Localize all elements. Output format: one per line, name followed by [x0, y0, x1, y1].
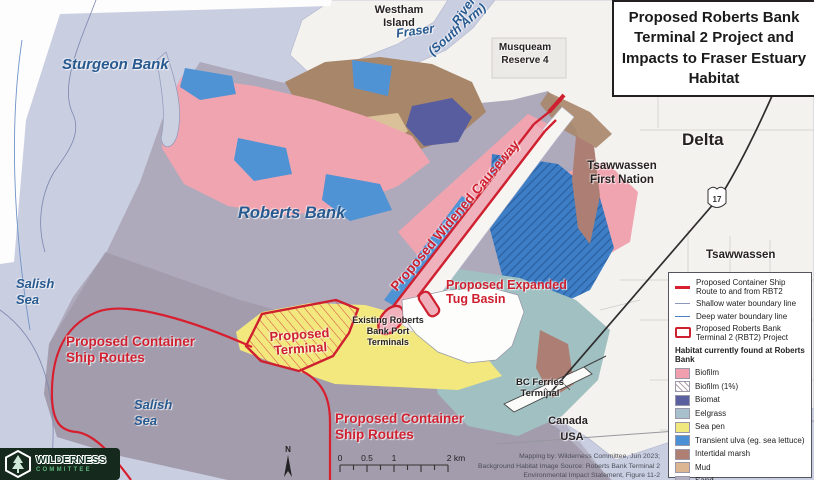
legend-item-mud: Mud [675, 462, 807, 473]
biofilm-1pct-swatch [675, 381, 690, 392]
logo-committee-text: COMMITTEE [36, 467, 106, 473]
label-musqueam: Musqueam Reserve 4 [486, 42, 564, 67]
svg-text:0.5: 0.5 [361, 453, 373, 463]
legend-item-sand: Sand [675, 476, 807, 480]
map-title: Proposed Roberts Bank Terminal 2 Project… [614, 8, 814, 89]
svg-text:N: N [285, 445, 291, 454]
label-proposed-terminal: Proposed Terminal [255, 325, 345, 360]
svg-text:1: 1 [392, 453, 397, 463]
highway-17-number: 17 [713, 195, 722, 204]
transient-ulva-swatch [675, 435, 690, 446]
sand-swatch [675, 476, 690, 480]
mud-swatch [675, 462, 690, 473]
shallow-boundary-swatch [675, 303, 690, 304]
tree-hexagon-icon [4, 450, 32, 478]
legend-item-intertidal-marsh: Intertidal marsh [675, 449, 807, 460]
logo-wilderness-text: WILDERNESS [36, 455, 106, 466]
deep-boundary-swatch [675, 316, 690, 317]
label-sturgeon-bank: Sturgeon Bank [62, 56, 169, 73]
label-salish-sea-1: Salish Sea [16, 276, 66, 307]
label-salish-sea-2: Salish Sea [134, 397, 184, 428]
svg-text:0: 0 [338, 453, 343, 463]
legend-item-eelgrass: Eelgrass [675, 408, 807, 419]
label-tug-basin: Proposed Expanded Tug Basin [446, 278, 586, 307]
legend-item-deep-boundary: Deep water boundary line [675, 312, 807, 321]
credits-line-1: Mapping by: Wilderness Committee, Jun 20… [420, 452, 660, 462]
label-roberts-bank: Roberts Bank [238, 204, 345, 223]
rbt2-project-swatch [675, 327, 691, 338]
legend-item-biomat: Biomat [675, 395, 807, 406]
ship-route-swatch [675, 286, 690, 289]
legend-panel: Proposed Container Ship Route to and fro… [668, 272, 812, 478]
label-delta: Delta [682, 130, 724, 150]
label-canada: Canada [538, 415, 598, 427]
wilderness-committee-logo: WILDERNESS COMMITTEE [0, 448, 120, 480]
label-existing-terminals: Existing Roberts Bank Port Terminals [348, 315, 428, 347]
legend-item-transient-ulva: Transient ulva (eg. sea lettuce) [675, 435, 807, 446]
label-bc-ferries: BC Ferries Terminal [506, 377, 574, 400]
legend-item-biofilm: Biofilm [675, 368, 807, 379]
label-tsawwassen: Tsawwassen [706, 249, 775, 261]
legend-item-ship-route: Proposed Container Ship Route to and fro… [675, 278, 807, 296]
label-ship-routes-2: Proposed Container Ship Routes [335, 411, 483, 442]
legend-item-sea-pen: Sea pen [675, 422, 807, 433]
legend-habitat-heading: Habitat currently found at Roberts Bank [675, 346, 807, 364]
eelgrass-swatch [675, 408, 690, 419]
highway-17-shield: 17 [708, 187, 726, 207]
credits-line-2: Background Habitat Image Source: Roberts… [420, 462, 660, 472]
label-tsawwassen-first-nation: Tsawwassen First Nation [576, 160, 668, 188]
credits-line-3: Environmental Impact Statement, Figure 1… [420, 471, 660, 480]
legend-item-biofilm-1pct: Biofilm (1%) [675, 381, 807, 392]
label-ship-routes-1: Proposed Container Ship Routes [66, 334, 214, 365]
map-credits: Mapping by: Wilderness Committee, Jun 20… [420, 452, 660, 480]
legend-item-rbt2-project: Proposed Roberts Bank Terminal 2 (RBT2) … [675, 324, 807, 342]
legend-item-shallow-boundary: Shallow water boundary line [675, 299, 807, 308]
map-title-box: Proposed Roberts Bank Terminal 2 Project… [612, 0, 814, 97]
biofilm-swatch [675, 368, 690, 379]
label-usa: USA [542, 431, 602, 443]
map-page: 17 N 0 0.5 1 2 km Sturgeon Bank Westham … [0, 0, 814, 480]
sea-pen-swatch [675, 422, 690, 433]
intertidal-marsh-swatch [675, 449, 690, 460]
biomat-swatch [675, 395, 690, 406]
